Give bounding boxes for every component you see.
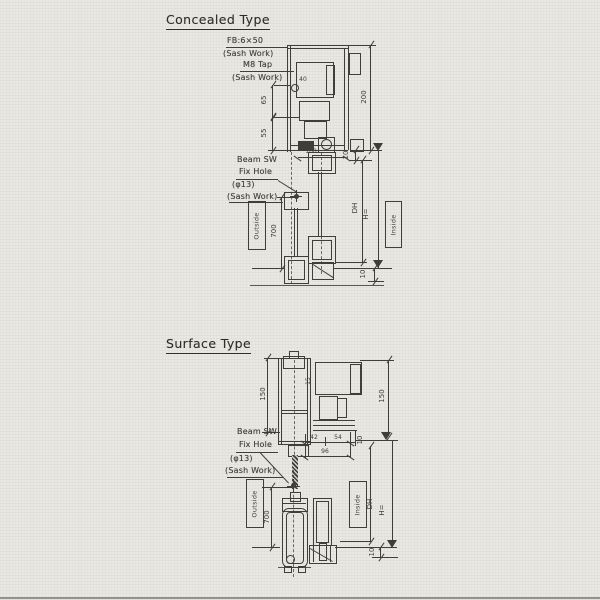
beam-sw-label: Beam SW: [237, 427, 277, 436]
dim-unit-offset: 15: [305, 376, 313, 386]
level-marker-top-icon: [373, 143, 383, 151]
beam-switch-flange: [326, 65, 335, 95]
dim-line-55: [272, 117, 273, 150]
dim-fb-offset: 65: [260, 95, 268, 105]
fb-sub-label: (Sash Work): [223, 49, 273, 58]
ext-line: [372, 557, 398, 558]
dim-door-height: DH: [366, 498, 374, 510]
mount-bracket-upper: [299, 101, 330, 121]
header-left-wall: [287, 45, 288, 152]
dim-hole-to-floor: 700: [270, 224, 278, 238]
dim-line-10: [350, 442, 355, 443]
fb-leader-line: [226, 47, 288, 48]
inside-tag-label: Inside: [354, 494, 362, 515]
dim-hole-to-screen: 42: [306, 434, 322, 441]
surface-title: Surface Type: [166, 336, 251, 354]
dim-height-note: H=: [378, 504, 386, 516]
dim-line-96: [305, 456, 350, 457]
door-top-rail-line: [282, 503, 306, 504]
level-marker-top-icon: [381, 432, 391, 440]
beam-sensor-arm: [337, 398, 347, 418]
dim-line-10-top: [355, 150, 356, 160]
glass-line: [297, 208, 298, 256]
dim-line-65: [272, 85, 273, 117]
dim-door-height: DH: [351, 202, 359, 214]
hanger-roller: [321, 139, 332, 150]
phi-label: (φ13): [232, 180, 255, 189]
beam-sensor-body: [319, 396, 338, 420]
ext-line: [352, 45, 376, 46]
dim-height-note: H=: [362, 208, 370, 220]
adjust-screw: [291, 84, 299, 92]
dim-hole-to-floor: 700: [263, 510, 271, 524]
track-right-wall-inner: [307, 358, 308, 444]
dim-line-door-height: [370, 446, 371, 541]
header-top-line: [287, 45, 352, 46]
dim-line-700: [271, 487, 272, 547]
fb-label: FB:6×50: [227, 36, 263, 45]
sash-work-label: (Sash Work): [225, 466, 275, 475]
glass-line: [318, 172, 319, 236]
dim-track-width: 100: [300, 148, 322, 155]
header-right-wall-inner: [344, 48, 345, 150]
dim-hole-to-face: 96: [317, 448, 333, 455]
dim-tap-offset: 55: [260, 128, 268, 138]
subfloor-line: [278, 567, 311, 568]
phi-label: (φ13): [230, 454, 253, 463]
glass-line: [294, 208, 295, 256]
ext-line: [335, 262, 367, 263]
centerline-dashed: [293, 470, 294, 577]
ext-line: [262, 487, 292, 488]
beam-switch-plate: [350, 364, 361, 394]
dim-line-700: [281, 197, 282, 268]
dim-floor-offset: 10: [359, 269, 367, 279]
ext-line: [268, 150, 287, 151]
ext-line: [274, 117, 299, 118]
outside-tag: Outside: [248, 201, 266, 250]
ext-line: [274, 85, 291, 86]
level-line: [374, 440, 398, 441]
floor-guide-wall: [313, 545, 314, 562]
sash-work-label: (Sash Work): [227, 192, 277, 201]
overall-height-line: [378, 150, 379, 268]
scan-edge: [0, 597, 600, 599]
fix-hole-label: Fix Hole: [239, 440, 272, 449]
track-right-wall: [310, 358, 311, 444]
inside-tag: Inside: [349, 481, 367, 528]
scanned-installation-drawing: Concealed Type FB:6×50 (Sash Work) M8 Ta…: [0, 0, 600, 600]
track-left-wall-inner: [281, 358, 282, 444]
dim-line-10-bottom: [374, 268, 375, 281]
fix-hole-label: Fix Hole: [239, 167, 272, 176]
outside-tag-label: Outside: [253, 212, 261, 239]
dim-screen-to-face: 54: [330, 434, 346, 441]
outside-panel-bottom-inner: [288, 260, 305, 280]
dim-floor-offset: 10: [368, 547, 376, 557]
level-marker-floor-icon: [387, 540, 397, 548]
callout-underline: [227, 477, 283, 478]
mount-plate-line: [313, 425, 355, 426]
dim-line-100: [298, 157, 346, 158]
dim-unit-height-right: 150: [378, 389, 386, 403]
overall-height-line: [392, 441, 393, 548]
glass-line: [321, 172, 322, 236]
dim-line-42-54: [305, 442, 350, 443]
header-top-bracket: [349, 53, 361, 75]
dim-top-offset: 10: [342, 150, 350, 160]
floor-line: [252, 268, 284, 269]
dim-face-gap: 10: [356, 435, 364, 445]
ext-line: [340, 541, 372, 542]
inside-panel-bottom-inner: [312, 240, 332, 260]
dim-line-10-bottom: [380, 547, 381, 557]
inside-tag: Inside: [385, 201, 402, 248]
beam-sw-label: Beam SW: [237, 155, 277, 164]
concealed-title: Concealed Type: [166, 12, 270, 30]
inside-tag-label: Inside: [390, 214, 398, 235]
dim-header-height: 200: [360, 90, 368, 104]
outside-tag-label: Outside: [251, 490, 259, 517]
subfloor-line: [250, 285, 384, 286]
header-top-inner-line: [287, 48, 348, 49]
dim-unit-width: 40: [295, 76, 311, 83]
m8-leader-line: [240, 71, 294, 72]
dim-unit-height-left: 150: [259, 387, 267, 401]
dim-line-150-left: [267, 358, 268, 432]
mount-plate-line: [313, 420, 355, 421]
mount-face-line: [313, 430, 357, 431]
ext-line: [368, 281, 384, 282]
inside-screen-inner: [316, 501, 329, 543]
floor-line: [252, 547, 280, 548]
dim-line-150-right: [388, 360, 389, 436]
callout-underline: [236, 452, 278, 453]
m8-label: M8 Tap: [243, 60, 272, 69]
header-left-wall-inner: [290, 45, 291, 152]
dim-line-200: [370, 45, 371, 150]
